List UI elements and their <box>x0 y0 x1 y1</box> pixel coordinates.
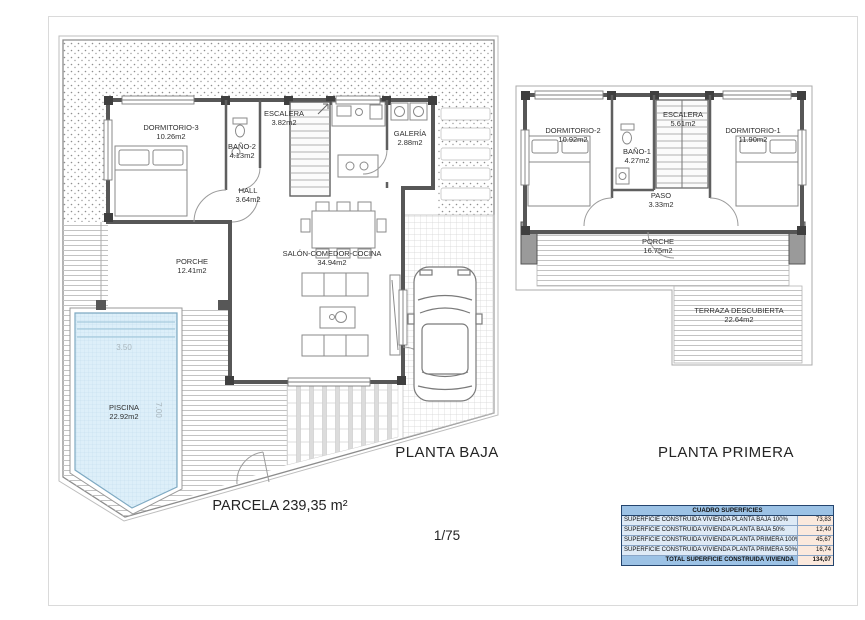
table-total-row: TOTAL SUPERFICIE CONSTRUIDA VIVIENDA 134… <box>622 556 833 565</box>
garden-gravel-left <box>63 96 108 222</box>
table-total-value: 134,07 <box>798 556 833 565</box>
table-row: SUPERFICIE CONSTRUIDA VIVIENDA PLANTA BA… <box>622 516 833 526</box>
room-label-bano-2: BAÑO-2 4.13m2 <box>228 143 256 160</box>
room-label-escalera-ff: ESCALERA 5.61m2 <box>663 111 703 128</box>
drawing-scale: 1/75 <box>434 528 460 543</box>
pool-width-dim: 3.50 <box>116 343 132 352</box>
table-row-value: 12,40 <box>798 526 833 535</box>
surfaces-table: CUADRO SUPERFICIES SUPERFICIE CONSTRUIDA… <box>621 505 834 566</box>
room-label-porche-gf: PORCHE 12.41m2 <box>176 258 208 275</box>
floor-plan-sheet: 3.50 7.00 <box>0 0 865 620</box>
room-label-bano-1: BAÑO-1 4.27m2 <box>623 148 651 165</box>
room-label-escalera-gf: ESCALERA 3.82m2 <box>264 110 304 127</box>
room-label-salon: SALÓN-COMEDOR-COCINA 34.94m2 <box>283 250 382 267</box>
table-row-label: SUPERFICIE CONSTRUIDA VIVIENDA PLANTA BA… <box>622 526 798 535</box>
table-row-label: SUPERFICIE CONSTRUIDA VIVIENDA PLANTA BA… <box>622 516 798 525</box>
terrace-deck <box>674 286 802 363</box>
room-label-dormitorio-1: DORMITORIO-1 11.90m2 <box>725 127 780 144</box>
table-row-label: SUPERFICIE CONSTRUIDA VIVIENDA PLANTA PR… <box>622 546 798 555</box>
ground-floor-title: PLANTA BAJA <box>395 444 499 461</box>
parcel-area-label: PARCELA 239,35 m² <box>212 498 347 514</box>
table-row: SUPERFICIE CONSTRUIDA VIVIENDA PLANTA PR… <box>622 546 833 556</box>
table-row-value: 73,83 <box>798 516 833 525</box>
garden-gravel-top <box>63 40 494 96</box>
car-top-view <box>408 267 482 401</box>
bed-dormitorio-3 <box>115 146 187 216</box>
kitchen-counter <box>332 102 385 126</box>
room-label-terraza: TERRAZA DESCUBIERTA 22.64m2 <box>694 307 783 324</box>
table-row: SUPERFICIE CONSTRUIDA VIVIENDA PLANTA BA… <box>622 526 833 536</box>
stepping-path <box>437 96 494 215</box>
bed-dormitorio-1 <box>736 136 798 206</box>
table-row-value: 45,67 <box>798 536 833 545</box>
first-floor-title: PLANTA PRIMERA <box>658 444 794 461</box>
surfaces-table-title: CUADRO SUPERFICIES <box>622 506 833 516</box>
pool-length-dim: 7.00 <box>154 402 163 418</box>
table-total-label: TOTAL SUPERFICIE CONSTRUIDA VIVIENDA <box>622 556 798 565</box>
room-label-hall: HALL 3.64m2 <box>235 187 260 204</box>
table-row-value: 16,74 <box>798 546 833 555</box>
room-label-dormitorio-2: DORMITORIO-2 10.92m2 <box>545 127 600 144</box>
table-row-label: SUPERFICIE CONSTRUIDA VIVIENDA PLANTA PR… <box>622 536 798 545</box>
room-label-dormitorio-3: DORMITORIO-3 10.26m2 <box>143 124 198 141</box>
bed-dormitorio-2 <box>528 136 590 206</box>
table-row: SUPERFICIE CONSTRUIDA VIVIENDA PLANTA PR… <box>622 536 833 546</box>
kitchen-island <box>338 155 378 177</box>
room-label-piscina: PISCINA 22.92m2 <box>109 404 139 421</box>
room-label-porche-ff: PORCHE 16.75m2 <box>642 238 674 255</box>
room-label-galeria: GALERÍA 2.88m2 <box>394 130 427 147</box>
room-label-paso: PASO 3.33m2 <box>648 192 673 209</box>
